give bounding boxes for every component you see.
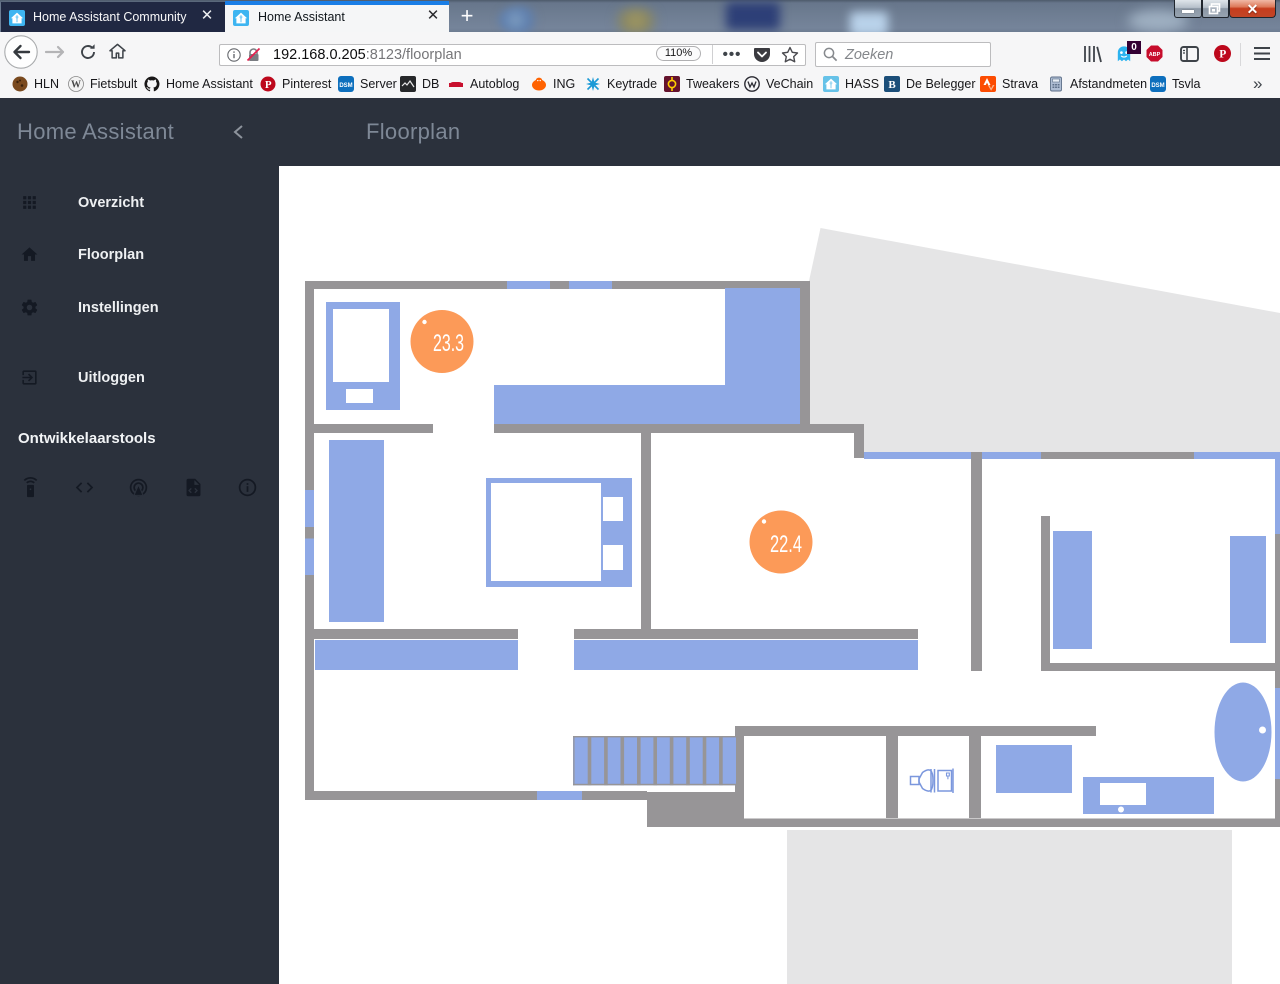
svg-text:B: B: [888, 79, 896, 91]
svg-text:P: P: [1219, 49, 1226, 61]
svg-text:W: W: [71, 80, 81, 91]
svg-text:DSM: DSM: [339, 83, 352, 89]
svg-text:P: P: [265, 79, 272, 91]
svg-text:23.3: 23.3: [433, 330, 464, 357]
svg-text:ABP: ABP: [1149, 52, 1161, 58]
svg-text:22.4: 22.4: [770, 531, 802, 558]
svg-text:DSM: DSM: [1151, 83, 1164, 89]
